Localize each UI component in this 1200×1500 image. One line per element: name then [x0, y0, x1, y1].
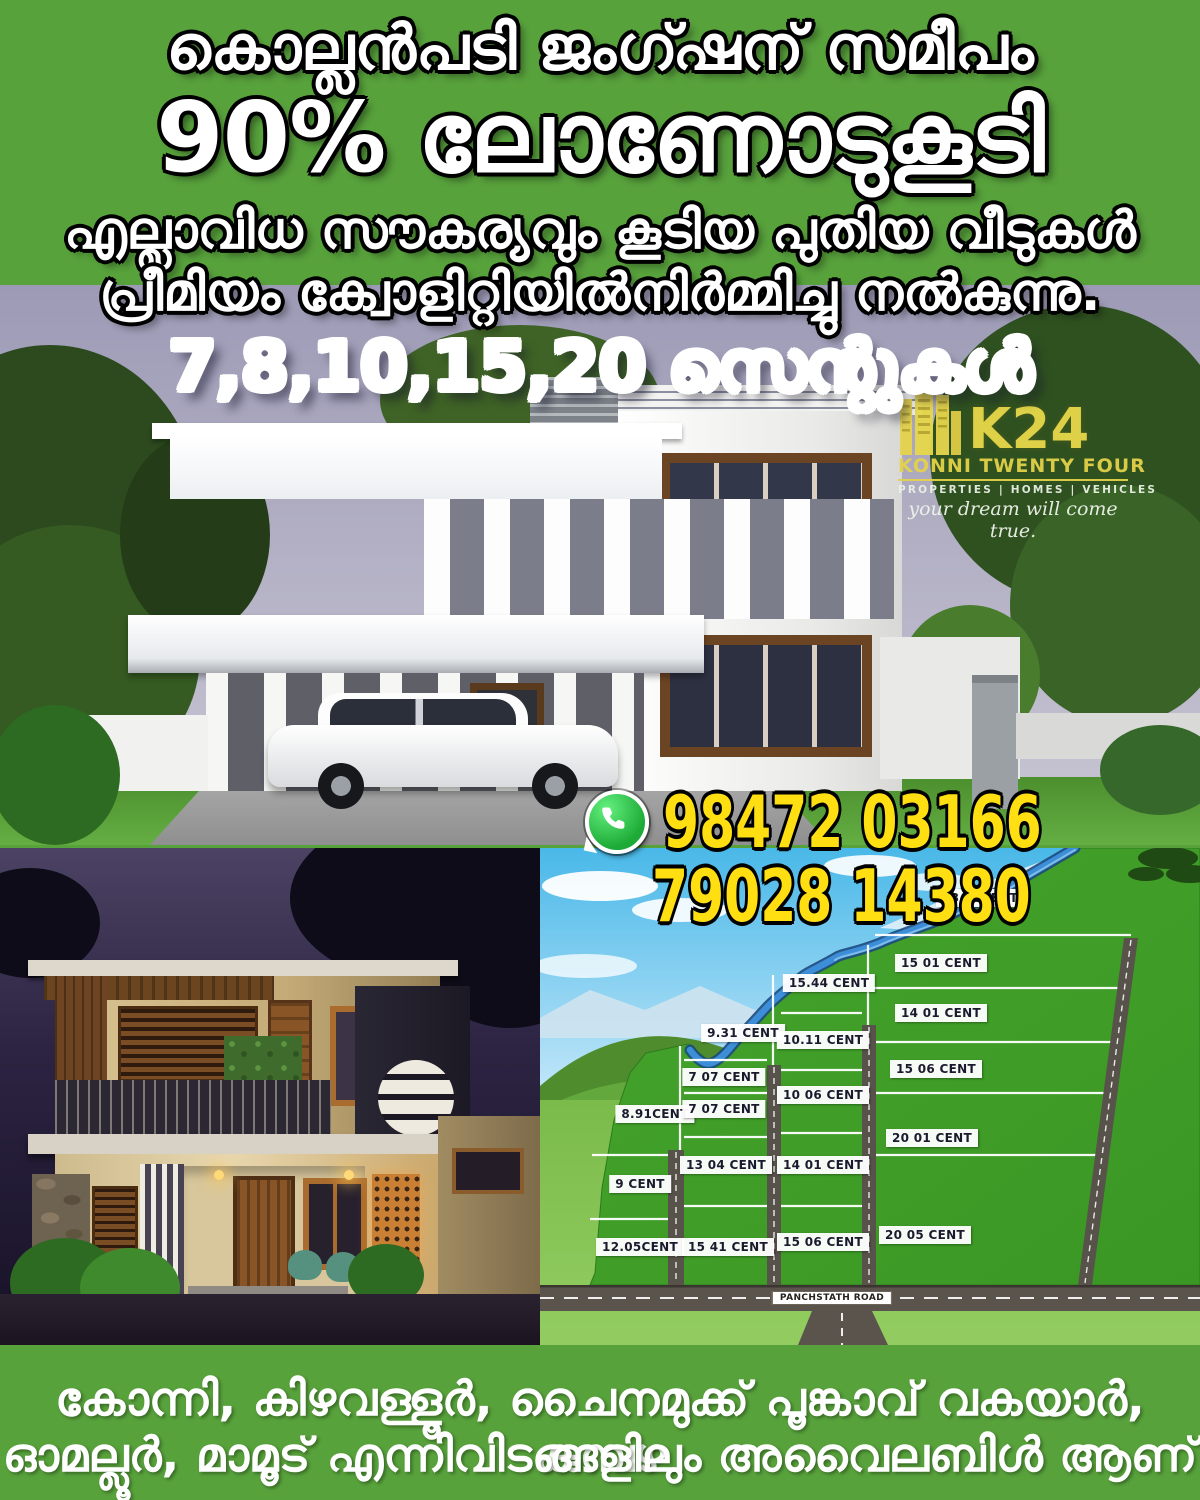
plot-cent-label: 15 06 CENT — [777, 1233, 869, 1251]
plot-cent-label: 14 01 CENT — [777, 1156, 869, 1174]
plot-cent-label: 7 07 CENT — [682, 1068, 765, 1086]
house-porch-canopy — [128, 615, 704, 673]
evening-house-photo — [0, 848, 540, 1345]
plot-cent-label: 7 07 CENT — [682, 1100, 765, 1118]
eve-roof-slab — [28, 960, 458, 976]
porch-light-2 — [344, 1170, 354, 1180]
plot-cent-label: 12.05CENT — [596, 1238, 684, 1256]
plot-cent-label: 14 01 CENT — [895, 1004, 987, 1022]
phone-block-2: 79028 14380 — [652, 854, 1178, 938]
cents-sizes-line: 7,8,10,15,20 സെന്റുകൾ — [0, 332, 1200, 404]
eve-balcony-railing — [55, 1080, 331, 1138]
house-upper-colonnade — [424, 499, 894, 619]
plot-cent-label: 15 01 CENT — [895, 954, 987, 972]
whatsapp-icon — [585, 790, 649, 854]
eve-right-wing — [438, 1116, 540, 1306]
k24-logo-services: PROPERTIES | HOMES | VEHICLES — [898, 484, 1128, 496]
plot-cent-label: 20 05 CENT — [879, 1226, 971, 1244]
phone-number-1: 98472 03166 — [663, 780, 1042, 864]
plot-cent-label: 10.11 CENT — [777, 1031, 869, 1049]
wet-ground — [0, 1294, 540, 1345]
eve-wing-window — [452, 1148, 524, 1194]
phone-handset-glyph — [599, 804, 631, 836]
plot-cent-label: 13 04 CENT — [680, 1156, 772, 1174]
k24-logo-title: KONNI TWENTY FOUR — [898, 455, 1128, 481]
eve-front-door — [233, 1176, 295, 1290]
porch-light-1 — [214, 1170, 224, 1180]
phone-number-2: 79028 14380 — [652, 854, 1031, 938]
subline-premium-quality: പ്രീമിയം ക്വോളിറ്റിയിൽനിർമ്മിച്ചു നൽകുന്… — [0, 266, 1200, 320]
plot-cent-label: 15.44 CENT — [783, 974, 875, 992]
plot-cent-label: 9 CENT — [609, 1175, 671, 1193]
car-wheel-rear — [532, 763, 578, 809]
headline-loan-offer: 90% ലോണോടുകൂടി — [0, 88, 1200, 189]
plot-cent-label: 15 41 CENT — [682, 1238, 774, 1256]
road-name-label: PANCHSTATH ROAD — [772, 1291, 892, 1305]
eve-floor-slab — [28, 1134, 468, 1154]
plot-cent-label: 15 06 CENT — [890, 1060, 982, 1078]
real-estate-poster: കൊല്ലൻപടി ജംഗ്ഷന് സമീപം 90% ലോണോടുകൂടി എ… — [0, 0, 1200, 1500]
plot-cent-label: 10 06 CENT — [777, 1086, 869, 1104]
headline-location: കൊല്ലൻപടി ജംഗ്ഷന് സമീപം — [0, 16, 1200, 80]
plot-cent-label: 20 01 CENT — [886, 1129, 978, 1147]
house-left-fascia — [170, 437, 662, 499]
phone-block-1: 98472 03166 — [585, 780, 1189, 864]
subline-houses: എല്ലാവിധ സൗകര്യവും കൂടിയ പുതിയ വീടുകൾ — [0, 204, 1200, 258]
plot-cent-label: 9.31 CENT — [701, 1024, 785, 1042]
footer-locations-line2: ഓമല്ലൂർ, മാമൂട് എന്നിവിടങ്ങളിലും അവൈലബിൾ… — [0, 1428, 1200, 1484]
k24-logo-tagline: your dream will come true. — [898, 498, 1128, 542]
car-wheel-front — [318, 763, 364, 809]
k24-logo-name: K24 — [968, 405, 1089, 455]
porch-chair-1 — [288, 1250, 322, 1280]
